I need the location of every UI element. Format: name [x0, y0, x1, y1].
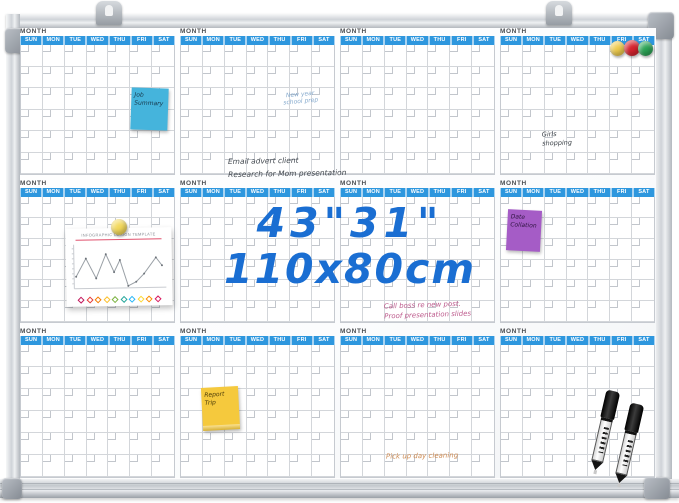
date-box: [610, 218, 618, 225]
calendar-cell: [472, 433, 494, 455]
calendar-cell: [567, 67, 589, 89]
calendar-cell: [545, 280, 567, 301]
date-box: [428, 131, 436, 138]
note-line: Research for Mom presentation: [228, 166, 347, 181]
calendar-cell: [472, 153, 494, 175]
date-box: [501, 389, 509, 396]
date-box: [501, 260, 509, 267]
date-box: [312, 280, 320, 287]
calendar-cell: [545, 345, 567, 367]
date-box: [87, 411, 95, 418]
weekday-header: SUNMONTUEWEDTHUFRISAT: [340, 188, 495, 197]
calendar-cell: [65, 455, 87, 477]
calendar-cell: [610, 345, 632, 367]
date-box: [181, 345, 189, 352]
date-box: [21, 455, 29, 462]
calendar-cell: [290, 367, 312, 389]
whiteboard-product-photo: MONTH SUNMONTUEWEDTHUFRISAT MONTH SUNMON…: [0, 0, 679, 503]
weekday-label: THU: [110, 36, 130, 45]
calendar-cell: [87, 153, 109, 175]
weekday-label: THU: [110, 188, 130, 197]
weekday-label: FRI: [132, 336, 152, 345]
date-box: [501, 67, 509, 74]
calendar-cell: [385, 67, 407, 89]
calendar-cell: [181, 153, 203, 175]
weekday-label: TUE: [65, 36, 85, 45]
date-box: [152, 411, 160, 418]
date-box: [632, 131, 640, 138]
date-box: [428, 411, 436, 418]
calendar-cell: [523, 411, 545, 433]
calendar-cell: [567, 153, 589, 175]
date-box: [247, 301, 255, 308]
date-box: [181, 67, 189, 74]
calendar-cell: [203, 197, 225, 218]
weekday-label: SAT: [314, 188, 334, 197]
calendar-cell: [428, 411, 450, 433]
date-box: [363, 131, 371, 138]
calendar-cell: [341, 197, 363, 218]
date-box: [501, 197, 509, 204]
calendar-cell: [312, 389, 334, 411]
date-box: [385, 239, 393, 246]
date-box: [181, 131, 189, 138]
weekday-label: WED: [247, 188, 267, 197]
calendar-cell: [407, 345, 429, 367]
weekday-label: TUE: [225, 188, 245, 197]
calendar-cell: [428, 280, 450, 301]
date-box: [43, 345, 51, 352]
calendar-cell: [181, 260, 203, 281]
date-box: [341, 197, 349, 204]
date-box: [407, 367, 415, 374]
date-box: [181, 455, 189, 462]
date-box: [225, 197, 233, 204]
date-box: [108, 153, 116, 160]
calendar-cell: [363, 433, 385, 455]
calendar-cell: [312, 218, 334, 239]
calendar-cell: [152, 367, 174, 389]
date-box: [363, 260, 371, 267]
calendar-cell: [385, 153, 407, 175]
date-box: [87, 197, 95, 204]
calendar-cell: [225, 197, 247, 218]
calendar-cell: [203, 110, 225, 132]
calendar-cell: [472, 455, 494, 477]
date-box: [407, 45, 415, 52]
calendar-cell: [152, 455, 174, 477]
calendar-cell: [152, 131, 174, 153]
date-box: [632, 260, 640, 267]
weekday-label: SUN: [21, 188, 41, 197]
calendar-cell: [203, 67, 225, 89]
calendar-cell: [181, 218, 203, 239]
date-box: [407, 239, 415, 246]
calendar-cell: [181, 433, 203, 455]
calendar-cell: [588, 110, 610, 132]
calendar-cell: [65, 197, 87, 218]
date-box: [21, 260, 29, 267]
date-box: [203, 218, 211, 225]
calendar-cell: [130, 433, 152, 455]
mounting-bracket-icon: [546, 1, 572, 25]
date-box: [567, 153, 575, 160]
date-box: [341, 280, 349, 287]
date-box: [21, 345, 29, 352]
weekday-header: SUNMONTUEWEDTHUFRISAT: [20, 336, 175, 345]
calendar-cell: [545, 260, 567, 281]
calendar-cell: [203, 131, 225, 153]
month-label: MONTH: [500, 28, 655, 36]
calendar-cell: [341, 455, 363, 477]
date-box: [545, 197, 553, 204]
date-box: [87, 218, 95, 225]
date-box: [21, 153, 29, 160]
weekday-label: SUN: [501, 336, 521, 345]
calendar-cell: [268, 67, 290, 89]
calendar-cell: [87, 88, 109, 110]
date-box: [567, 280, 575, 287]
calendar-cell: [610, 218, 632, 239]
calendar-cell: [181, 280, 203, 301]
calendar-cell: [567, 218, 589, 239]
date-box: [290, 411, 298, 418]
month-label: MONTH: [500, 180, 655, 188]
calendar-cell: [108, 433, 130, 455]
calendar-cell: [203, 345, 225, 367]
date-box: [312, 367, 320, 374]
calendar-cell: [428, 345, 450, 367]
date-box: [545, 67, 553, 74]
calendar-cell: [501, 455, 523, 477]
calendar-cell: [130, 45, 152, 67]
calendar-cell: [501, 280, 523, 301]
calendar-cell: [290, 131, 312, 153]
date-box: [290, 45, 298, 52]
date-box: [181, 367, 189, 374]
date-box: [268, 131, 276, 138]
date-box: [65, 389, 73, 396]
calendar-cell: [152, 45, 174, 67]
calendar-cell: [567, 389, 589, 411]
calendar-cell: [181, 197, 203, 218]
date-box: [341, 88, 349, 95]
weekday-label: WED: [567, 36, 587, 45]
date-box: [108, 131, 116, 138]
weekday-label: SUN: [341, 36, 361, 45]
calendar-cell: [108, 110, 130, 132]
calendar-cell: [290, 218, 312, 239]
date-box: [567, 260, 575, 267]
calendar-cell: [108, 367, 130, 389]
weekday-label: WED: [567, 336, 587, 345]
date-box: [341, 433, 349, 440]
date-box: [407, 197, 415, 204]
calendar-cell: [108, 131, 130, 153]
date-box: [290, 433, 298, 440]
calendar-cell: [21, 218, 43, 239]
calendar-cell: [21, 67, 43, 89]
diamond-icon: [154, 295, 161, 302]
calendar-cell: [290, 345, 312, 367]
date-box: [472, 45, 480, 52]
calendar-cell: [407, 239, 429, 260]
calendar-cell: [450, 197, 472, 218]
calendar-cell: [87, 367, 109, 389]
date-box: [43, 280, 51, 287]
date-box: [385, 88, 393, 95]
date-box: [385, 153, 393, 160]
calendar-cell: [428, 218, 450, 239]
date-box: [108, 367, 116, 374]
date-box: [43, 301, 51, 308]
month-grid: [180, 197, 335, 323]
date-box: [312, 67, 320, 74]
date-box: [450, 411, 458, 418]
calendar-cell: [247, 218, 269, 239]
calendar-cell: [225, 280, 247, 301]
date-box: [65, 88, 73, 95]
calendar-cell: [312, 433, 334, 455]
date-box: [108, 197, 116, 204]
calendar-cell: [225, 88, 247, 110]
sticky-note-report-trip: Report Trip: [201, 386, 240, 431]
date-box: [632, 239, 640, 246]
date-box: [43, 131, 51, 138]
calendar-cell: [545, 218, 567, 239]
date-box: [203, 197, 211, 204]
calendar-cell: [21, 345, 43, 367]
date-box: [632, 110, 640, 117]
date-box: [341, 67, 349, 74]
date-box: [545, 367, 553, 374]
calendar-cell: [181, 239, 203, 260]
calendar-cell: [312, 67, 334, 89]
month-panel: MONTH SUNMONTUEWEDTHUFRISAT: [340, 28, 495, 175]
calendar-cell: [43, 67, 65, 89]
date-box: [428, 110, 436, 117]
date-box: [501, 280, 509, 287]
date-box: [363, 433, 371, 440]
calendar-cell: [247, 301, 269, 322]
date-box: [501, 301, 509, 308]
calendar-cell: [450, 67, 472, 89]
date-box: [523, 345, 531, 352]
calendar-cell: [407, 218, 429, 239]
calendar-cell: [472, 239, 494, 260]
calendar-cell: [21, 433, 43, 455]
weekday-header: SUNMONTUEWEDTHUFRISAT: [20, 36, 175, 45]
weekday-label: SUN: [21, 36, 41, 45]
calendar-cell: [588, 218, 610, 239]
calendar-cell: [247, 389, 269, 411]
calendar-cell: [65, 153, 87, 175]
date-box: [428, 389, 436, 396]
calendar-cell: [65, 367, 87, 389]
weekday-label: SAT: [474, 36, 494, 45]
weekday-label: FRI: [292, 336, 312, 345]
diamond-icon: [78, 297, 85, 304]
date-box: [203, 110, 211, 117]
date-box: [21, 131, 29, 138]
date-box: [588, 110, 596, 117]
calendar-cell: [407, 153, 429, 175]
calendar-cell: [21, 197, 43, 218]
calendar-cell: [407, 280, 429, 301]
calendar-cell: [545, 110, 567, 132]
date-box: [290, 110, 298, 117]
calendar-cell: [588, 131, 610, 153]
weekday-label: TUE: [65, 336, 85, 345]
date-box: [181, 197, 189, 204]
date-box: [407, 345, 415, 352]
date-box: [65, 131, 73, 138]
calendar-cell: [108, 153, 130, 175]
calendar-cell: [341, 88, 363, 110]
calendar-cell: [341, 345, 363, 367]
calendar-cell: [385, 260, 407, 281]
date-box: [588, 67, 596, 74]
calendar-cell: [567, 280, 589, 301]
calendar-cell: [428, 260, 450, 281]
date-box: [268, 260, 276, 267]
date-box: [225, 239, 233, 246]
calendar-cell: [21, 280, 43, 301]
weekday-label: FRI: [452, 188, 472, 197]
date-box: [363, 110, 371, 117]
date-box: [472, 280, 480, 287]
date-box: [385, 67, 393, 74]
date-box: [341, 131, 349, 138]
date-box: [545, 389, 553, 396]
date-box: [501, 153, 509, 160]
month-label: MONTH: [180, 328, 335, 336]
date-box: [450, 239, 458, 246]
calendar-cell: [632, 301, 654, 322]
calendar-cell: [43, 367, 65, 389]
calendar-cell: [108, 197, 130, 218]
calendar-cell: [523, 433, 545, 455]
date-box: [472, 345, 480, 352]
weekday-label: MON: [43, 336, 63, 345]
calendar-cell: [290, 411, 312, 433]
date-box: [312, 411, 320, 418]
weekday-header: SUNMONTUEWEDTHUFRISAT: [180, 36, 335, 45]
calendar-cell: [65, 345, 87, 367]
calendar-cell: [108, 45, 130, 67]
calendar-cell: [43, 301, 65, 322]
weekday-label: TUE: [545, 336, 565, 345]
weekday-label: MON: [203, 336, 223, 345]
date-box: [363, 239, 371, 246]
calendar-cell: [312, 411, 334, 433]
date-box: [545, 411, 553, 418]
calendar-cell: [567, 411, 589, 433]
calendar-cell: [290, 67, 312, 89]
calendar-cell: [428, 367, 450, 389]
date-box: [545, 260, 553, 267]
weekday-label: MON: [203, 188, 223, 197]
calendar-cell: [341, 301, 363, 322]
weekday-label: FRI: [292, 188, 312, 197]
weekday-label: WED: [87, 188, 107, 197]
date-box: [632, 88, 640, 95]
weekday-label: WED: [87, 336, 107, 345]
calendar-cell: [632, 280, 654, 301]
date-box: [225, 110, 233, 117]
date-box: [428, 45, 436, 52]
calendar-cell: [43, 455, 65, 477]
date-box: [312, 197, 320, 204]
date-box: [472, 88, 480, 95]
calendar-cell: [385, 197, 407, 218]
weekday-label: MON: [203, 36, 223, 45]
date-box: [181, 88, 189, 95]
calendar-cell: [545, 153, 567, 175]
date-box: [43, 239, 51, 246]
date-box: [21, 110, 29, 117]
calendar-cell: [21, 45, 43, 67]
date-box: [203, 260, 211, 267]
calendar-cell: [472, 411, 494, 433]
date-box: [181, 433, 189, 440]
weekday-label: SAT: [314, 36, 334, 45]
date-box: [21, 389, 29, 396]
calendar-cell: [472, 367, 494, 389]
calendar-cell: [87, 110, 109, 132]
date-box: [203, 239, 211, 246]
date-box: [152, 197, 160, 204]
calendar-cell: [545, 45, 567, 67]
calendar-cell: [385, 88, 407, 110]
weekday-label: TUE: [385, 336, 405, 345]
weekday-label: TUE: [385, 36, 405, 45]
calendar-cell: [341, 67, 363, 89]
date-box: [472, 411, 480, 418]
date-box: [363, 367, 371, 374]
calendar-cell: [588, 45, 610, 67]
weekday-label: SAT: [154, 336, 174, 345]
calendar-cell: [225, 239, 247, 260]
weekday-label: SUN: [181, 188, 201, 197]
calendar-cell: [290, 239, 312, 260]
calendar-cell: [268, 345, 290, 367]
date-box: [428, 239, 436, 246]
calendar-cell: [203, 153, 225, 175]
magnet-green-icon: [638, 41, 653, 56]
weekday-label: SAT: [154, 188, 174, 197]
month-grid: [500, 45, 655, 175]
date-box: [523, 88, 531, 95]
month-label: MONTH: [180, 180, 335, 188]
date-box: [450, 433, 458, 440]
calendar-cell: [87, 455, 109, 477]
date-box: [472, 389, 480, 396]
date-box: [108, 455, 116, 462]
date-box: [203, 280, 211, 287]
date-box: [87, 367, 95, 374]
weekday-label: TUE: [225, 36, 245, 45]
weekday-header: SUNMONTUEWEDTHUFRISAT: [340, 36, 495, 45]
date-box: [225, 45, 233, 52]
calendar-cell: [181, 131, 203, 153]
date-box: [428, 88, 436, 95]
calendar-cell: [225, 45, 247, 67]
date-box: [247, 345, 255, 352]
weekday-label: THU: [430, 188, 450, 197]
date-box: [545, 88, 553, 95]
calendar-cell: [247, 131, 269, 153]
